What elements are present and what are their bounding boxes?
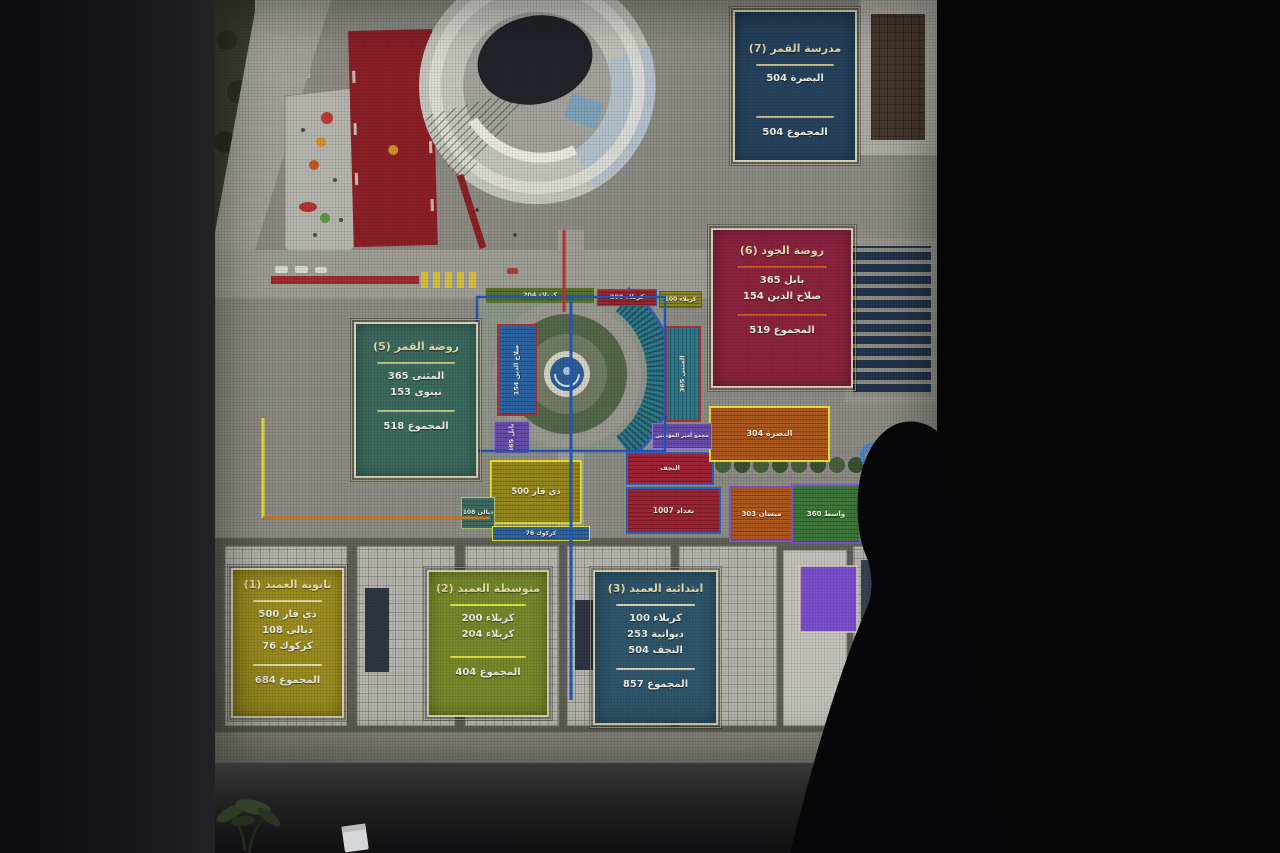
legend-box-school-6: روضة الجود (6) بابل 365 صلاح الدين 154 ا…: [711, 228, 853, 388]
legend-row: بابل 365: [760, 275, 805, 286]
legend-total: المجموع 684: [255, 675, 320, 686]
legend-row: كربلاء 200: [462, 613, 515, 624]
legend-row: كربلاء 100: [629, 613, 682, 624]
divider: [737, 266, 828, 268]
floor-objects: [215, 763, 937, 853]
legend-row: ديوانية 253: [627, 629, 684, 640]
legend-box-school-5: روضة القمر (5) المثنى 365 نينوى 153 المج…: [354, 322, 478, 478]
legend-row: البصرة 504: [766, 73, 824, 84]
legend-title: مدرسة القمر (7): [749, 42, 841, 55]
legend-total: المجموع 404: [455, 667, 520, 678]
divider: [253, 664, 323, 666]
divider: [377, 410, 455, 412]
dark-right-background: [937, 0, 1280, 853]
legend-row: صلاح الدين 154: [743, 291, 821, 302]
divider: [737, 314, 828, 316]
divider: [756, 64, 834, 66]
legend-box-school-2: متوسطة العميد (2) كربلاء 200 كربلاء 204 …: [427, 570, 549, 717]
white-object: [341, 823, 368, 852]
photo-scene: كربلاء 204 كربلاء 200 كربلاء 100 صلاح ال…: [0, 0, 1280, 853]
legend-box-school-1: ثانوية العميد (1) ذي قار 500 ديالى 108 ك…: [231, 568, 344, 718]
legend-box-school-7: مدرسة القمر (7) البصرة 504 المجموع 504: [733, 10, 857, 162]
legend-row: كركوك 76: [262, 641, 313, 652]
divider: [756, 116, 834, 118]
divider: [450, 656, 526, 658]
legend-title: متوسطة العميد (2): [436, 582, 540, 595]
room-floor: [215, 763, 937, 853]
legend-total: المجموع 519: [749, 325, 814, 336]
legend-total: المجموع 518: [383, 421, 448, 432]
room-wall: [0, 0, 215, 853]
legend-title: روضة القمر (5): [373, 340, 459, 353]
legend-title: ابتدائية العميد (3): [608, 582, 704, 595]
legend-title: روضة الجود (6): [740, 244, 824, 257]
legend-total: المجموع 504: [762, 127, 827, 138]
divider: [377, 362, 455, 364]
projector-screen: كربلاء 204 كربلاء 200 كربلاء 100 صلاح ال…: [215, 0, 937, 763]
divider: [616, 604, 694, 606]
legend-row: نينوى 153: [390, 387, 442, 398]
legend-row: ديالى 108: [262, 625, 313, 636]
legend-title: ثانوية العميد (1): [244, 578, 332, 591]
legend-total: المجموع 857: [623, 679, 688, 690]
legend-row: النجف 504: [628, 645, 683, 656]
divider: [450, 604, 526, 606]
divider: [616, 668, 694, 670]
legend-row: المثنى 365: [388, 371, 445, 382]
legend-row: كربلاء 204: [462, 629, 515, 640]
plant-silhouette: [215, 796, 283, 853]
legend-row: ذي قار 500: [258, 609, 316, 620]
legend-box-school-3: ابتدائية العميد (3) كربلاء 100 ديوانية 2…: [593, 570, 718, 725]
divider: [253, 600, 323, 602]
